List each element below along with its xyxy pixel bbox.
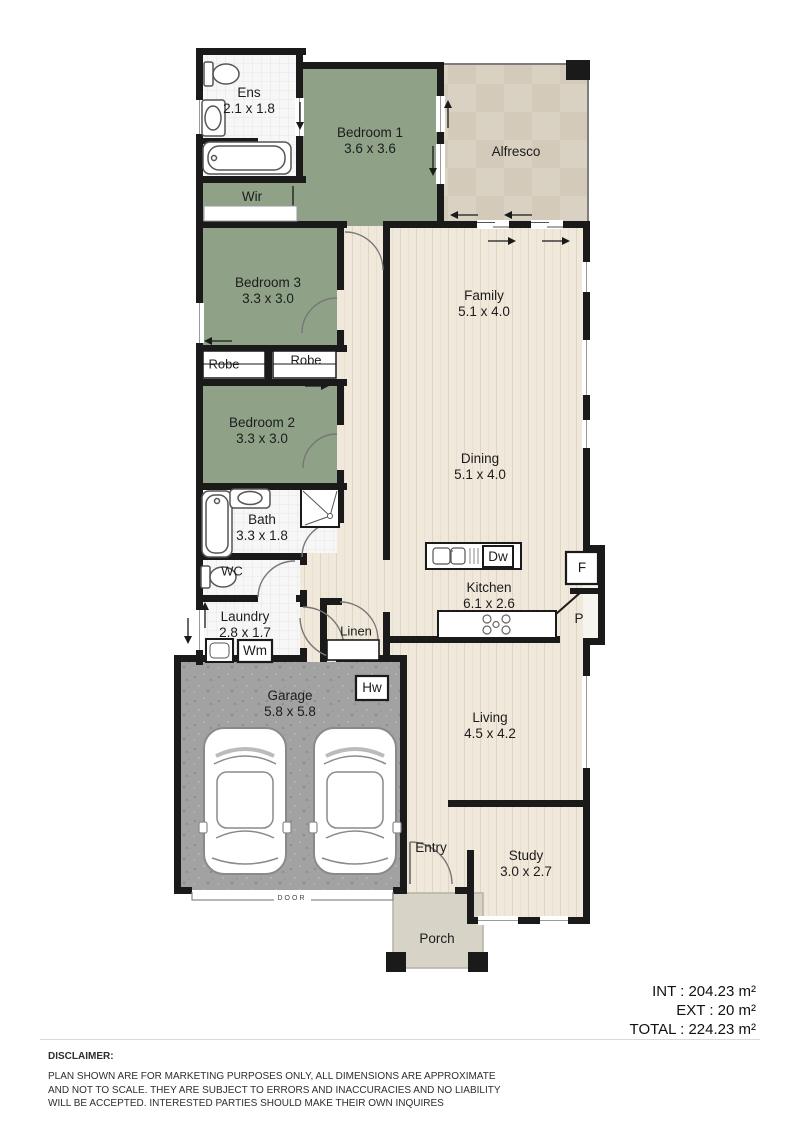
area-int: INT : 204.23 m² xyxy=(536,982,756,1001)
kitchen-bench xyxy=(438,611,556,638)
label-pantry: P xyxy=(574,611,583,627)
laundry-sink-icon xyxy=(206,639,233,662)
room-label-bath: Bath 3.3 x 1.8 xyxy=(236,512,288,544)
label-fridge: F xyxy=(578,560,586,576)
room-label-study: Study 3.0 x 2.7 xyxy=(500,848,552,880)
room-label-robe-right: Robe xyxy=(290,352,321,367)
room-label-dining: Dining 5.1 x 4.0 xyxy=(454,451,506,483)
room-label-bedroom2: Bedroom 2 3.3 x 3.0 xyxy=(229,415,295,447)
garage-door-label: DOOR xyxy=(275,895,310,903)
room-label-garage: Garage 5.8 x 5.8 xyxy=(264,688,316,720)
window xyxy=(582,420,591,448)
area-total: TOTAL : 224.23 m² xyxy=(536,1020,756,1039)
bathtub-icon xyxy=(203,142,291,174)
label-washing-machine: Wm xyxy=(243,643,267,659)
area-ext: EXT : 20 m² xyxy=(536,1001,756,1020)
disclaimer: DISCLAIMER: PLAN SHOWN ARE FOR MARKETING… xyxy=(48,1051,518,1111)
window xyxy=(478,916,518,925)
label-hot-water: Hw xyxy=(362,680,382,696)
window xyxy=(436,144,445,184)
divider-line xyxy=(40,1039,760,1040)
room-label-wc: WC xyxy=(221,563,243,578)
room-label-living: Living 4.5 x 4.2 xyxy=(464,710,516,742)
sink-icon xyxy=(433,548,465,564)
shower-icon xyxy=(301,489,339,527)
basin-icon xyxy=(230,489,270,508)
room-label-entry: Entry xyxy=(415,840,447,856)
floorplan-page: Ens 2.1 x 1.8 Bedroom 1 3.6 x 3.6 Alfres… xyxy=(0,0,800,1132)
room-label-wir: Wir xyxy=(242,189,262,205)
window xyxy=(582,676,591,768)
window xyxy=(195,610,204,650)
disclaimer-body: PLAN SHOWN ARE FOR MARKETING PURPOSES ON… xyxy=(48,1070,518,1111)
disclaimer-heading: DISCLAIMER: xyxy=(48,1051,518,1062)
room-label-bedroom1: Bedroom 1 3.6 x 3.6 xyxy=(337,125,403,157)
basin-icon xyxy=(202,100,225,136)
room-label-ens: Ens 2.1 x 1.8 xyxy=(223,85,275,117)
wardrobe-shelf xyxy=(204,206,297,221)
car-icon xyxy=(309,728,401,874)
area-summary: INT : 204.23 m² EXT : 20 m² TOTAL : 224.… xyxy=(536,982,756,1039)
sliding-door xyxy=(477,220,509,229)
sliding-door xyxy=(531,220,563,229)
floor-hall xyxy=(337,226,386,662)
window xyxy=(582,340,591,395)
car-icon xyxy=(199,728,291,874)
room-label-robe-left: Robe xyxy=(208,356,239,371)
label-dishwasher: Dw xyxy=(488,549,508,565)
room-label-linen: Linen xyxy=(340,623,372,638)
room-label-family: Family 5.1 x 4.0 xyxy=(458,288,510,320)
toilet-icon xyxy=(204,62,239,86)
room-label-laundry: Laundry 2.8 x 1.7 xyxy=(219,609,271,641)
bathtub-icon xyxy=(202,491,232,557)
room-label-alfresco: Alfresco xyxy=(492,144,541,160)
room-label-kitchen: Kitchen 6.1 x 2.6 xyxy=(463,580,515,612)
window xyxy=(582,262,591,292)
window xyxy=(195,303,204,343)
window xyxy=(540,916,568,925)
linen-shelf xyxy=(327,640,379,660)
room-label-bedroom3: Bedroom 3 3.3 x 3.0 xyxy=(235,275,301,307)
window xyxy=(436,96,445,132)
alfresco-post xyxy=(566,60,590,80)
room-label-porch: Porch xyxy=(419,931,454,947)
floorplan-drawing xyxy=(0,0,800,1132)
arrow-down-icon xyxy=(184,618,192,644)
